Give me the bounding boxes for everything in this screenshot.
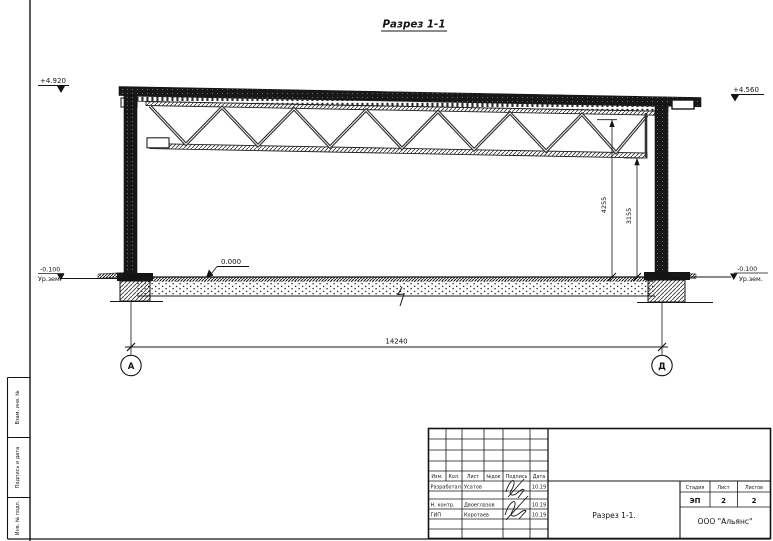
tb-sheet-label: Лист xyxy=(717,485,729,491)
elevation-floor: 0.000 xyxy=(206,258,249,278)
dim-3155-value: 3155 xyxy=(625,208,633,225)
roof-fascia-detail xyxy=(672,100,694,109)
axis-bubbles: А Д xyxy=(121,355,672,375)
strip-box-inv: Инв. № подл. xyxy=(15,500,21,535)
axis-left-label: А xyxy=(128,362,135,372)
strip-box-vzam: Взам. инв. № xyxy=(15,390,21,425)
dim-4255-value: 4255 xyxy=(600,197,608,214)
tb-sheets-value: 2 xyxy=(752,497,757,505)
drawing-canvas: Взам. инв. № Подпись и дата Инв. № подл.… xyxy=(0,0,773,541)
tb-row1-role: Разработал xyxy=(431,485,461,491)
tb-col-ndok: №док xyxy=(486,474,500,480)
signature-marks xyxy=(505,479,528,520)
ground-right-label: Ур.зем. xyxy=(739,276,763,283)
elevation-right-top: +4.560 xyxy=(731,86,764,102)
dim-span-value: 14240 xyxy=(385,338,407,346)
tb-col-izm: Изм. xyxy=(431,474,442,480)
side-strip: Взам. инв. № Подпись и дата Инв. № подл. xyxy=(15,390,21,536)
tb-row2-name: Двоеглазов xyxy=(464,503,495,509)
tb-row2-role: Н. контр. xyxy=(431,503,455,509)
dim-vertical-3155: 3155 xyxy=(624,158,642,281)
tb-stage-label: Стадия xyxy=(686,485,705,491)
strip-box-podpis: Подпись и дата xyxy=(15,447,21,488)
tb-row1-name: Усатов xyxy=(464,485,482,491)
building-section xyxy=(98,87,713,307)
column-left xyxy=(124,95,137,274)
elev-floor-value: 0.000 xyxy=(221,258,241,266)
section-title: Разрез 1-1 xyxy=(381,19,447,32)
tb-row2-date: 10.19 xyxy=(532,503,546,509)
title-block: Изм. Кол. Лист №док Подпись Дата Разрабо… xyxy=(429,429,771,539)
tb-doc-title: Разрез 1-1. xyxy=(592,511,636,520)
dim-span: 14240 xyxy=(125,302,668,355)
tb-company: ООО "Альянс" xyxy=(698,517,753,526)
elev-right-value: +4.560 xyxy=(733,86,759,94)
tb-row3-name: Коротаев xyxy=(464,513,489,519)
floor-slab xyxy=(137,277,655,306)
tb-row1-date: 10.19 xyxy=(532,485,546,491)
elevation-left-top: +4.920 xyxy=(38,77,69,93)
tb-col-kol: Кол. xyxy=(449,474,460,480)
ground-left-label: Ур.зем. xyxy=(38,276,62,283)
axis-right-label: Д xyxy=(658,362,666,372)
tb-row3-date: 10.19 xyxy=(532,513,546,519)
tb-col-date: Дата xyxy=(533,474,545,480)
tb-sheets-label: Листов xyxy=(745,485,763,491)
tb-col-sign: Подпись xyxy=(506,474,528,480)
ground-left-value: -0.100 xyxy=(40,267,60,274)
elev-left-value: +4.920 xyxy=(40,77,66,85)
ground-right-value: -0.100 xyxy=(737,266,757,273)
elevation-ground-right: -0.100 Ур.зем. xyxy=(688,266,768,283)
tb-col-list: Лист xyxy=(467,474,479,480)
section-title-text: Разрез 1-1 xyxy=(382,19,445,31)
drawing-sheet: Взам. инв. № Подпись и дата Инв. № подл.… xyxy=(0,0,773,541)
truss-left-seat xyxy=(147,138,169,148)
column-right xyxy=(655,105,668,273)
tb-row3-role: ГИП xyxy=(431,513,442,519)
tb-stage-value: ЭП xyxy=(690,497,701,505)
tb-sheet-value: 2 xyxy=(721,497,726,505)
